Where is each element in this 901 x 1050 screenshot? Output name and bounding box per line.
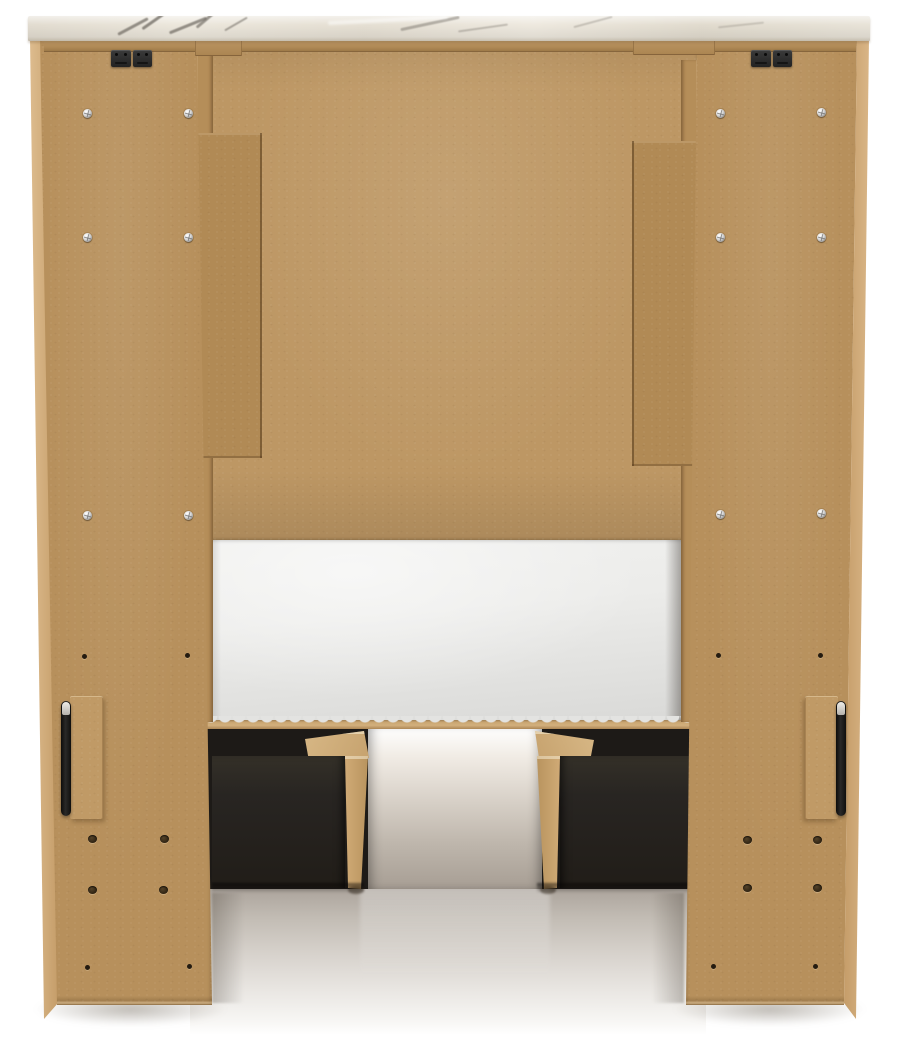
marble-vein: [224, 17, 248, 32]
screw-icon: [184, 233, 193, 242]
screw-icon: [716, 233, 725, 242]
drill-hole: [88, 835, 97, 843]
marble-vein: [573, 16, 612, 28]
marble-top-cap: [28, 16, 870, 41]
screw-icon: [716, 510, 725, 519]
drill-hole: [813, 964, 818, 969]
drill-hole: [187, 964, 192, 969]
drill-hole: [85, 965, 90, 970]
drill-hole: [88, 886, 97, 894]
screw-icon: [817, 108, 826, 117]
drill-hole: [716, 653, 721, 658]
drill-hole: [185, 653, 190, 658]
marble-vein: [458, 24, 508, 33]
screw-icon: [83, 233, 92, 242]
screw-icon: [83, 109, 92, 118]
drill-hole: [160, 835, 169, 843]
hardware-layer: [0, 0, 901, 1050]
drill-hole: [159, 886, 168, 894]
drill-hole: [813, 836, 822, 844]
drill-hole: [82, 654, 87, 659]
screw-icon: [83, 511, 92, 520]
drill-hole: [743, 836, 752, 844]
screw-icon: [184, 511, 193, 520]
product-photo: [0, 0, 901, 1050]
screw-icon: [716, 109, 725, 118]
marble-vein: [718, 22, 764, 29]
screw-icon: [184, 109, 193, 118]
screw-icon: [817, 233, 826, 242]
drill-hole: [813, 884, 822, 892]
drill-hole: [818, 653, 823, 658]
drill-hole: [743, 884, 752, 892]
drill-hole: [711, 964, 716, 969]
screw-icon: [817, 509, 826, 518]
marble-vein: [196, 16, 215, 29]
